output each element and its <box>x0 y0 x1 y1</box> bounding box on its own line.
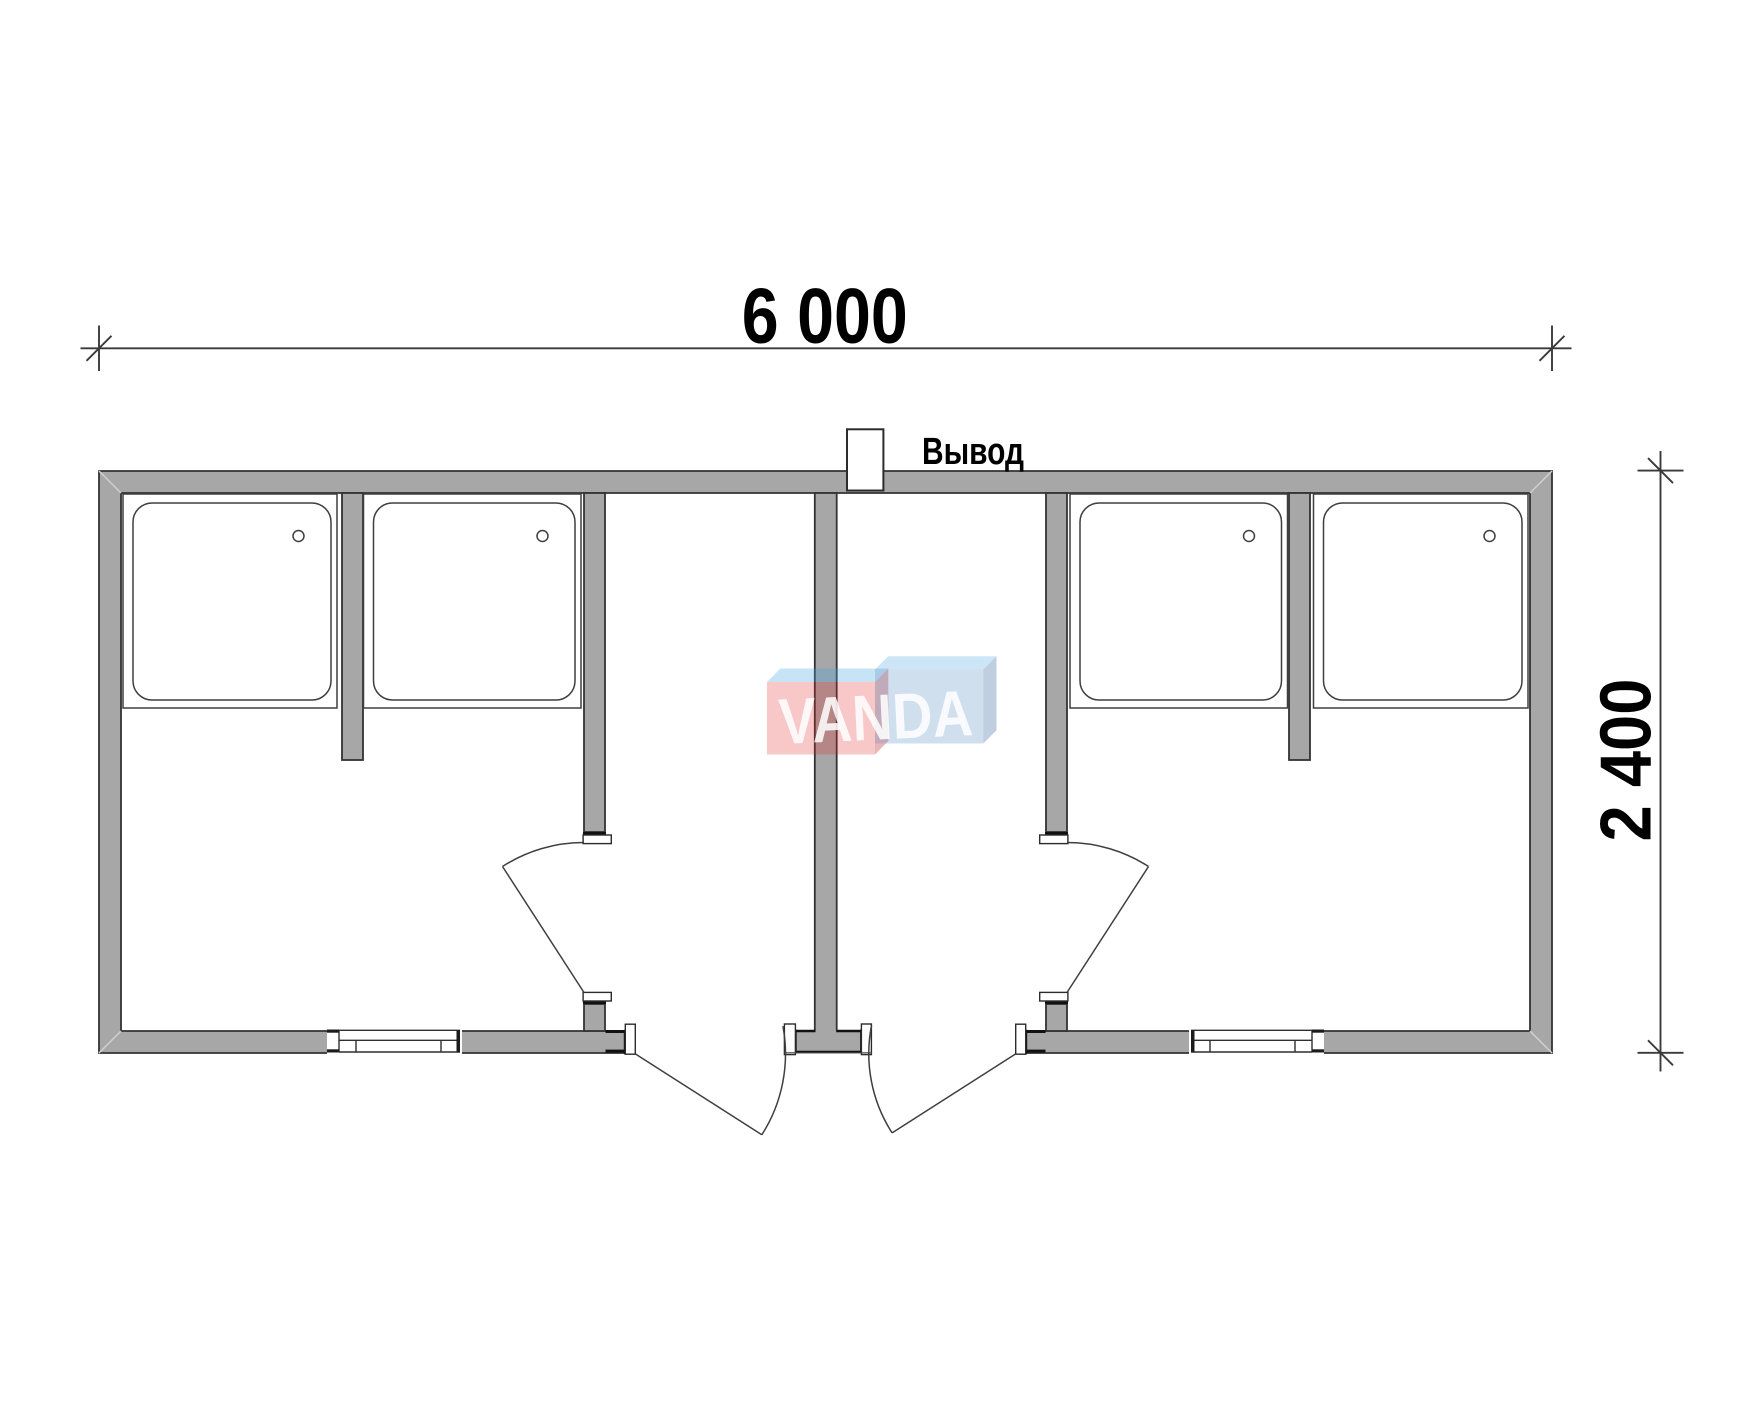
svg-text:Вывод: Вывод <box>922 431 1024 473</box>
svg-text:VANDA: VANDA <box>777 677 974 758</box>
svg-text:6 000: 6 000 <box>742 272 908 360</box>
svg-text:2 400: 2 400 <box>1587 679 1667 842</box>
